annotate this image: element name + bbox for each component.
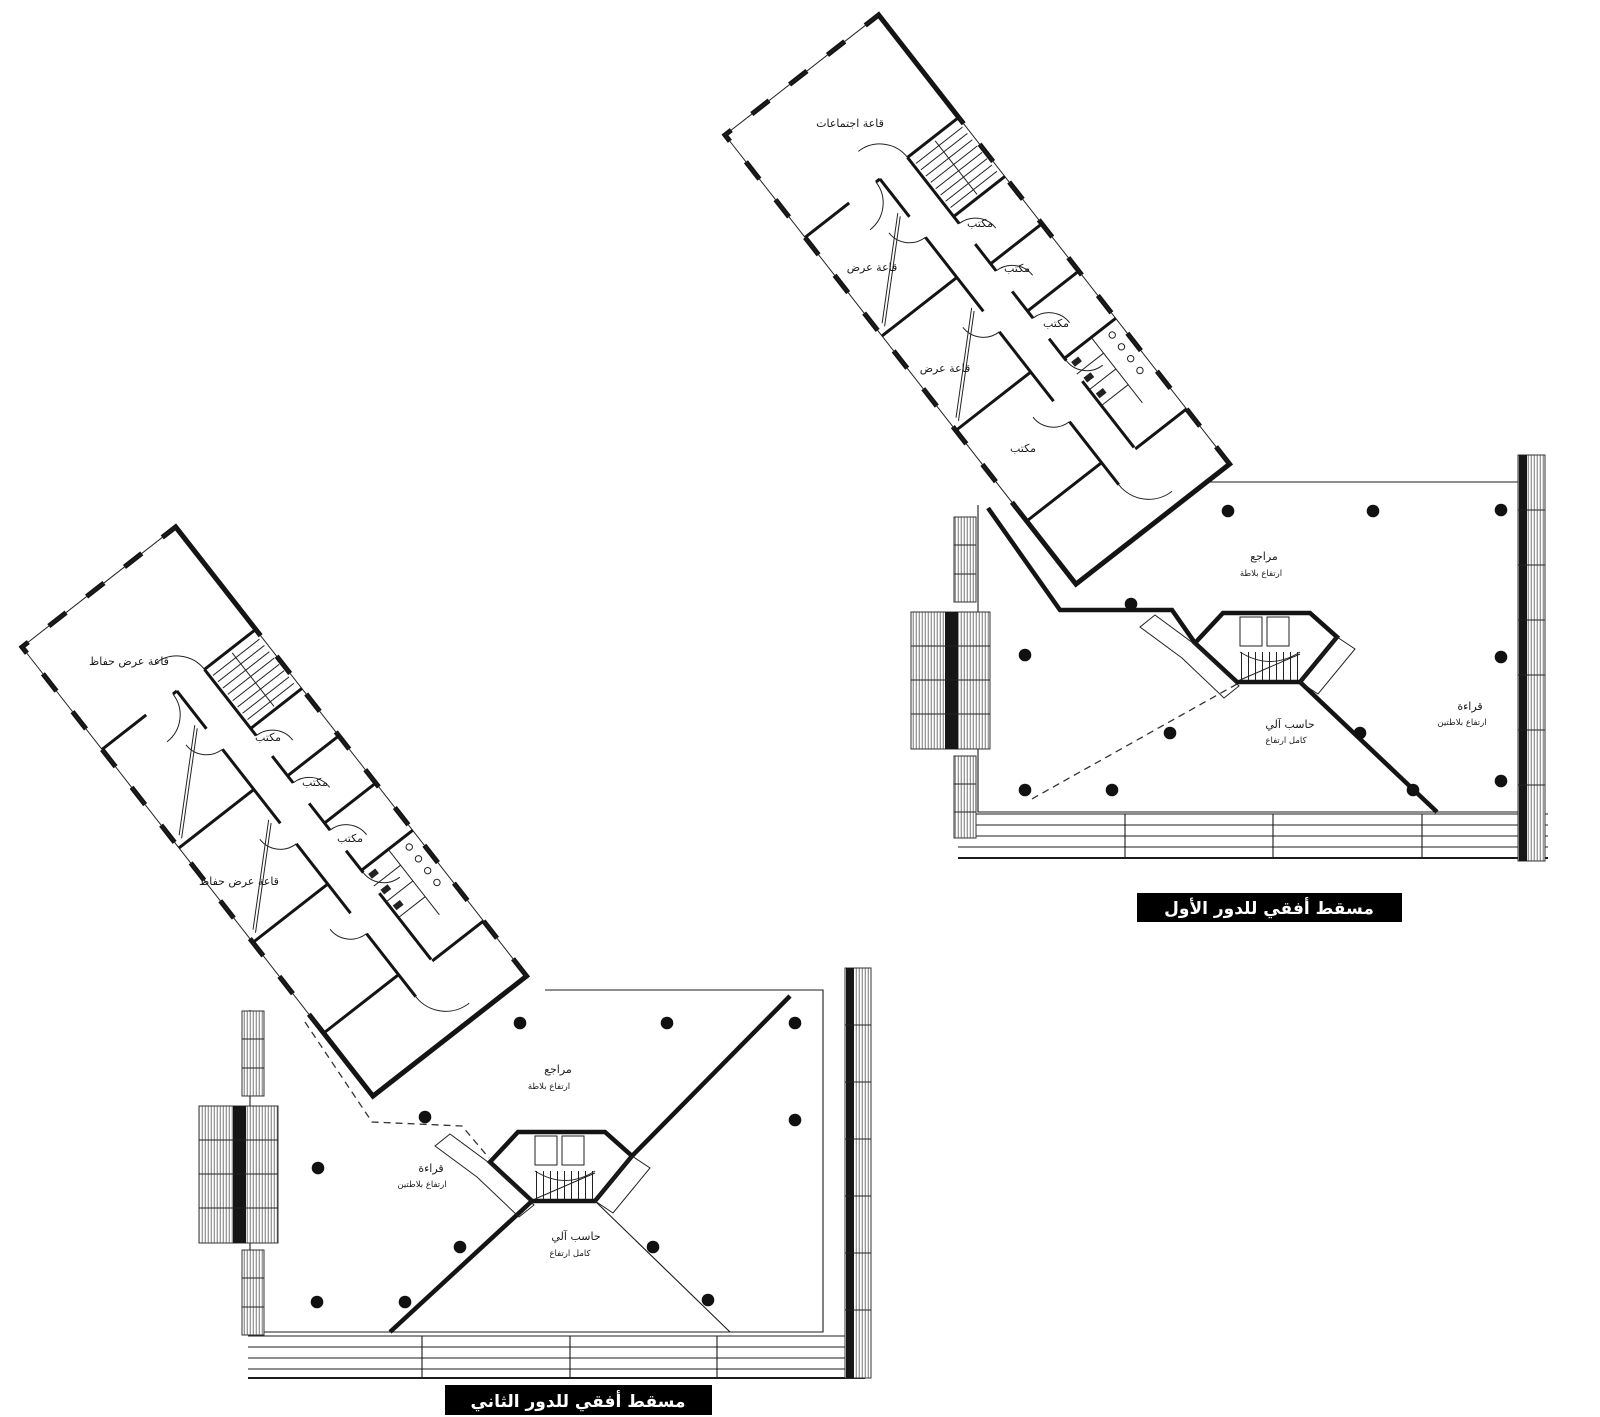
- plan-title-first-floor: مسقط أفقي للدور الأول: [1164, 897, 1374, 919]
- hall-diagonal-line: [595, 1201, 730, 1332]
- room-label-preservation-hall-2: قاعة عرض حفاظ: [199, 875, 279, 888]
- room-label-office-3: مكتب: [337, 832, 363, 845]
- wing-block: [725, 15, 1230, 584]
- room-label-exhibition-2: قاعة عرض: [920, 362, 971, 375]
- room-label-exhibition-1: قاعة عرض: [847, 261, 898, 274]
- zone-label-references: مراجع: [1250, 550, 1278, 563]
- overhead-projection-line: [1030, 684, 1237, 800]
- room-label-meeting-hall: قاعة اجتماعات: [816, 117, 884, 130]
- first-floor-plan: قاعة اجتماعات مكتب قاعة عرض مكتب مكتب قا…: [725, 15, 1548, 922]
- core-block: [435, 1132, 650, 1217]
- plan-title-bar-first-floor: مسقط أفقي للدور الأول: [1137, 893, 1402, 922]
- room-label-office-1: مكتب: [967, 217, 993, 230]
- zone-label-references: مراجع: [544, 1063, 572, 1076]
- room-label-office-3: مكتب: [1043, 317, 1069, 330]
- louvre-screen-left: [199, 1011, 278, 1335]
- zone-label-computer: حاسب آلي: [1265, 717, 1314, 731]
- zone-note-reading: ارتفاع بلاطتين: [397, 1180, 446, 1190]
- core-block: [1140, 613, 1355, 698]
- zone-label-reading: قراءة: [1457, 700, 1482, 713]
- hall-diagonal-wall-2: [390, 1201, 532, 1332]
- room-label-office-2: مكتب: [1004, 262, 1030, 275]
- wing-block: [22, 527, 527, 1096]
- terrace-steps: [958, 814, 1548, 858]
- plan-title-second-floor: مسقط أفقي للدور الثاني: [470, 1390, 685, 1412]
- second-floor-plan: قاعة عرض حفاظ مكتب مكتب مكتب قاعة عرض حف…: [22, 527, 871, 1415]
- louvre-screen-right: [845, 968, 871, 1378]
- zone-note-references: ارتفاع بلاطة: [1240, 569, 1282, 579]
- hall-diagonal-wall-1: [632, 996, 790, 1156]
- terrace-steps: [248, 1336, 865, 1378]
- zone-note-reading: ارتفاع بلاطتين: [1437, 718, 1486, 728]
- zone-note-computer: كامل ارتفاع: [549, 1249, 591, 1259]
- plan-title-bar-second-floor: مسقط أفقي للدور الثاني: [445, 1385, 712, 1415]
- louvre-screen-right: [1518, 455, 1545, 861]
- room-label-office-1: مكتب: [255, 731, 281, 744]
- zone-label-reading: قراءة: [418, 1162, 443, 1175]
- drawing-sheet: قاعة اجتماعات مكتب قاعة عرض مكتب مكتب قا…: [0, 0, 1600, 1417]
- room-label-office-2: مكتب: [302, 776, 328, 789]
- zone-label-computer: حاسب آلي: [551, 1229, 600, 1243]
- zone-note-computer: كامل ارتفاع: [1265, 736, 1307, 746]
- floor-plans-canvas: قاعة اجتماعات مكتب قاعة عرض مكتب مكتب قا…: [0, 0, 1600, 1417]
- room-label-office-4: مكتب: [1010, 442, 1036, 455]
- room-label-preservation-hall-1: قاعة عرض حفاظ: [89, 655, 169, 668]
- zone-note-references: ارتفاع بلاطة: [528, 1082, 570, 1092]
